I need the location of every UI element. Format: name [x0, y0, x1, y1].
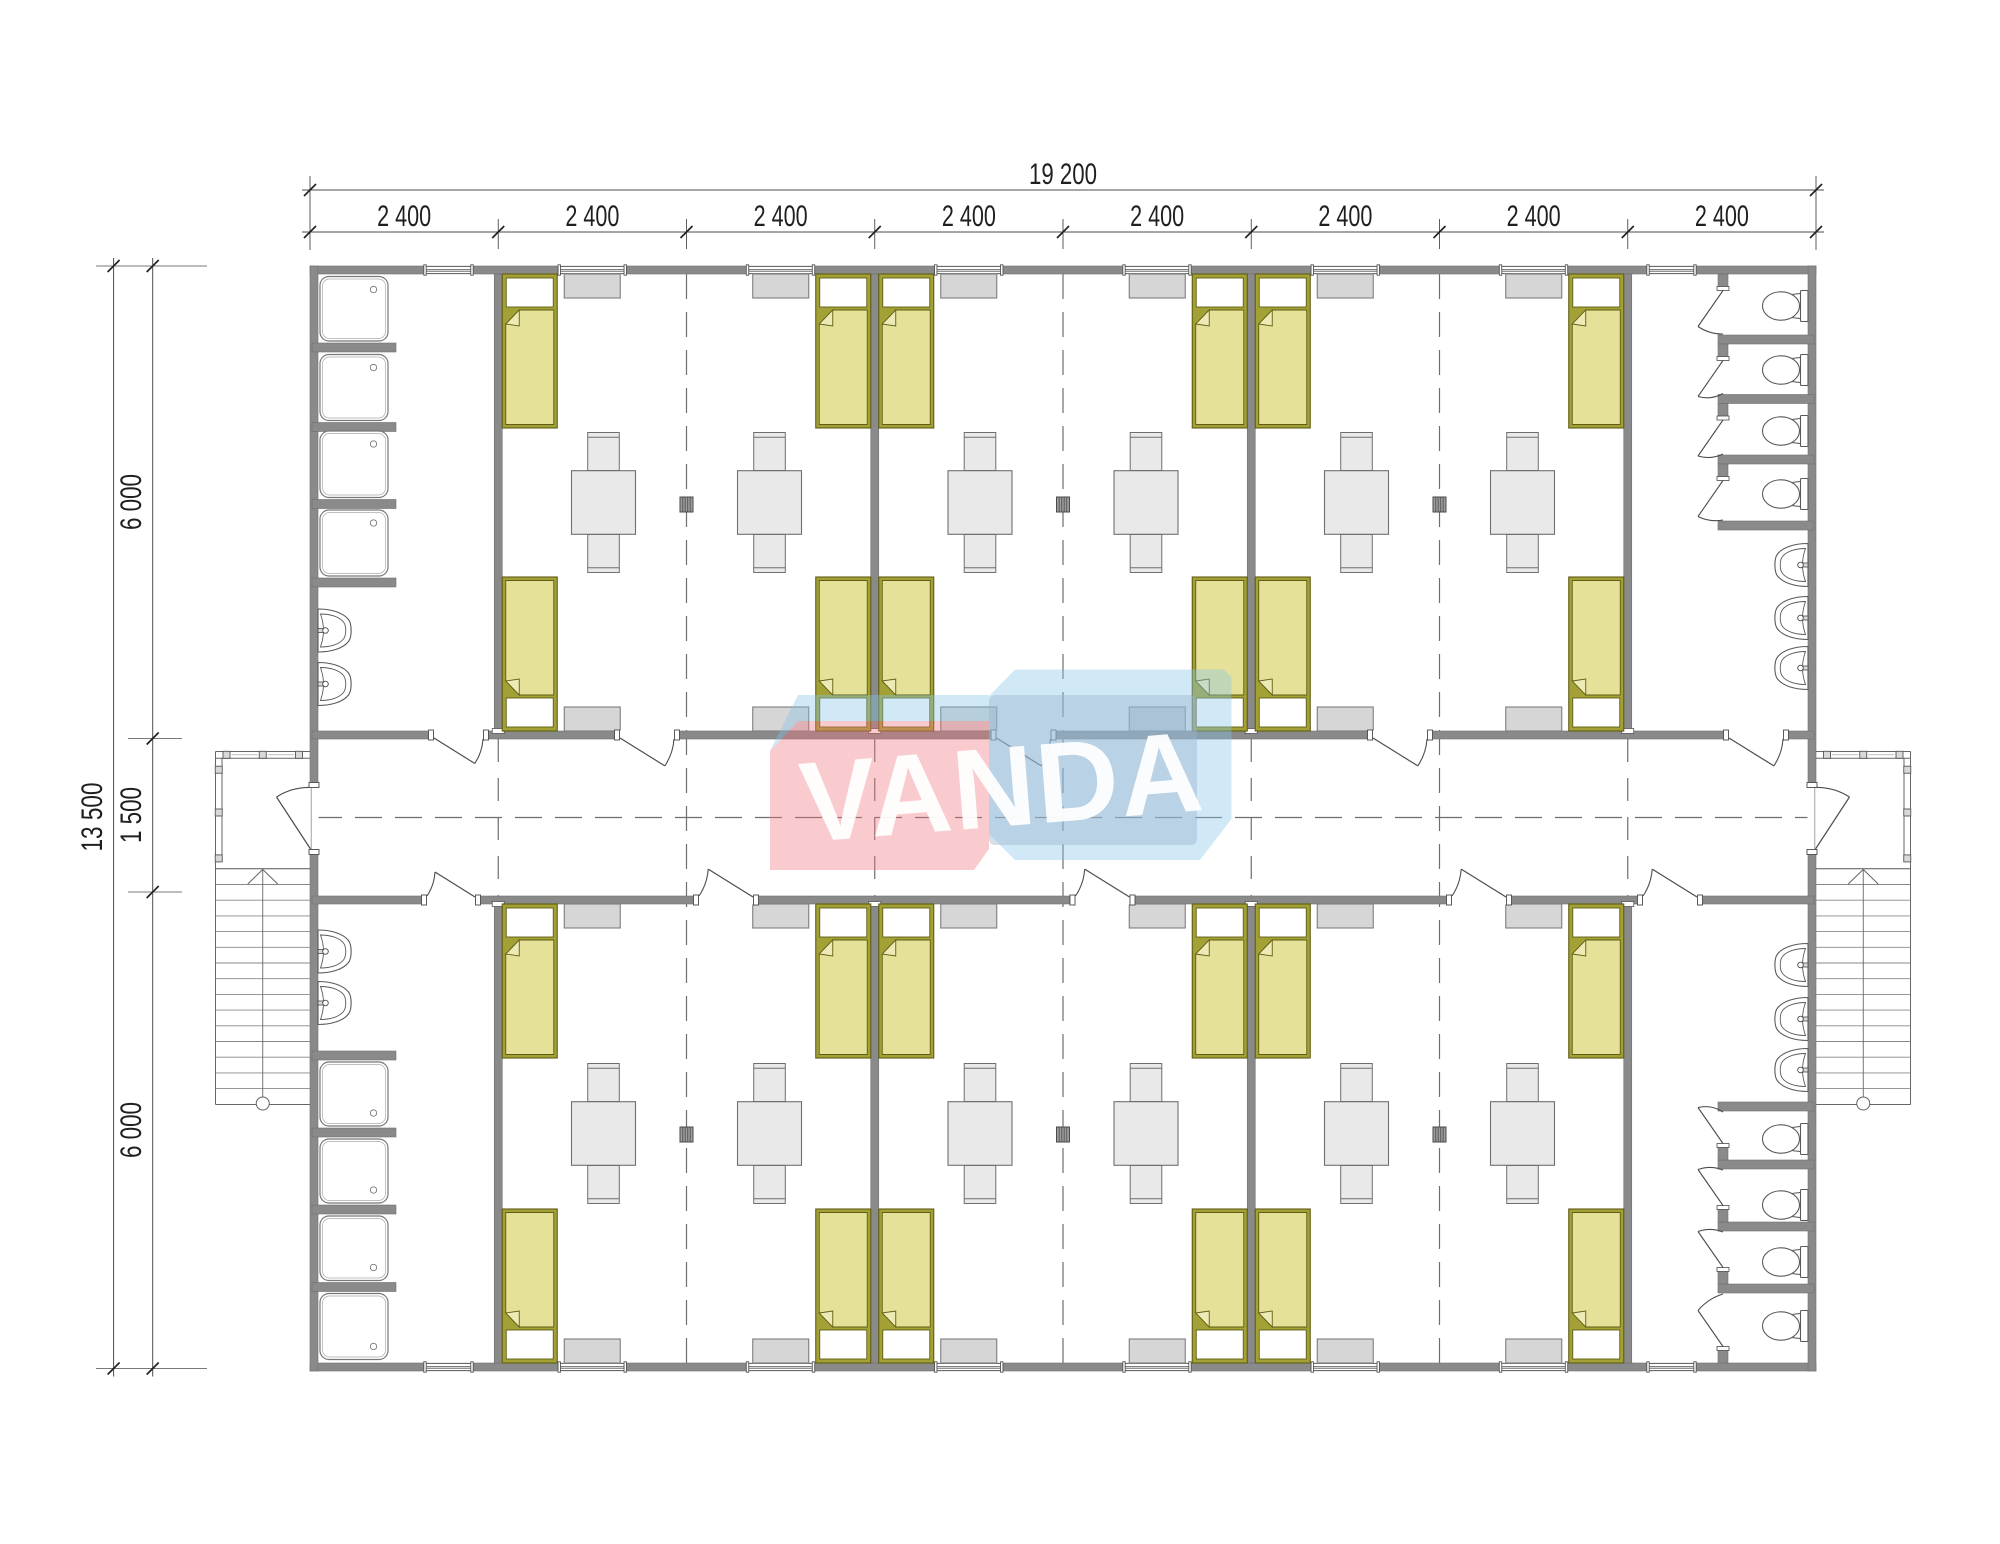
svg-text:2 400: 2 400 [377, 200, 431, 233]
svg-text:2 400: 2 400 [1318, 200, 1372, 233]
svg-text:2 400: 2 400 [1130, 200, 1184, 233]
svg-text:2 400: 2 400 [754, 200, 808, 233]
svg-text:2 400: 2 400 [565, 200, 619, 233]
svg-text:1 500: 1 500 [115, 787, 148, 843]
svg-text:6 000: 6 000 [115, 474, 148, 530]
svg-text:2 400: 2 400 [1507, 200, 1561, 233]
svg-text:2 400: 2 400 [942, 200, 996, 233]
svg-text:13 500: 13 500 [76, 783, 109, 852]
svg-text:6 000: 6 000 [115, 1102, 148, 1158]
svg-text:2 400: 2 400 [1695, 200, 1749, 233]
svg-text:19 200: 19 200 [1029, 158, 1097, 191]
